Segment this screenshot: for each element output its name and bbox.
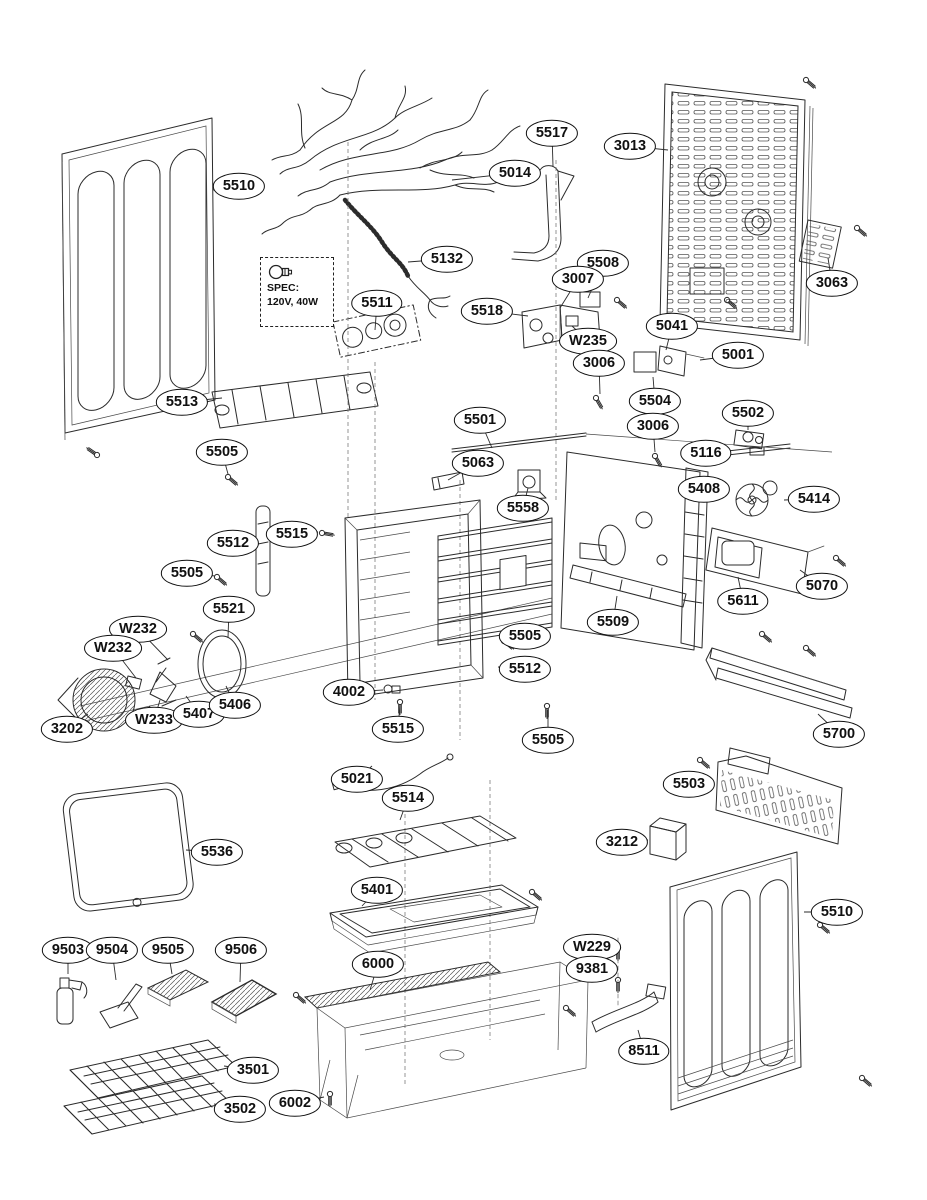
part-callout-3063: 3063: [806, 270, 858, 297]
part-callout-5014: 5014: [489, 160, 541, 187]
part-callout-5503: 5503: [663, 771, 715, 798]
part-callout-9381: 9381: [566, 956, 618, 983]
part-callout-5001: 5001: [712, 342, 764, 369]
part-callout-5521: 5521: [203, 596, 255, 623]
part-callout-6000: 6000: [352, 951, 404, 978]
part-callout-6002: 6002: [269, 1090, 321, 1117]
part-callout-5611: 5611: [717, 588, 768, 615]
part-callout-5514: 5514: [382, 785, 434, 812]
part-callout-5512: 5512: [207, 530, 259, 557]
part-callout-5515: 5515: [372, 716, 424, 743]
part-callout-5517: 5517: [526, 120, 578, 147]
part-callout-5510: 5510: [811, 899, 863, 926]
part-callout-5132: 5132: [421, 246, 473, 273]
part-callout-5116: 5116: [680, 440, 731, 467]
part-callout-5700: 5700: [813, 721, 865, 748]
part-callout-3006: 3006: [627, 413, 679, 440]
part-callout-5511: 5511: [351, 290, 402, 317]
part-callout-5505: 5505: [499, 623, 551, 650]
part-callout-3212: 3212: [596, 829, 648, 856]
part-callout-5505: 5505: [522, 727, 574, 754]
part-callout-5512: 5512: [499, 656, 551, 683]
part-callout-5504: 5504: [629, 388, 681, 415]
part-callout-5558: 5558: [497, 495, 549, 522]
part-callout-3501: 3501: [227, 1057, 279, 1084]
part-callout-5505: 5505: [161, 560, 213, 587]
part-callout-5502: 5502: [722, 400, 774, 427]
part-callout-5515: 5515: [266, 521, 318, 548]
part-callout-5406: 5406: [209, 692, 261, 719]
part-callout-5063: 5063: [452, 450, 504, 477]
exploded-parts-diagram: SPEC: 120V, 40W 551055175014301330635132…: [0, 0, 927, 1200]
part-callout-3202: 3202: [41, 716, 93, 743]
part-callout-w232: W232: [84, 635, 142, 662]
callout-layer: 5510551750143013306351325508300755115518…: [0, 0, 927, 1200]
part-callout-5408: 5408: [678, 476, 730, 503]
part-callout-4002: 4002: [323, 679, 375, 706]
part-callout-5021: 5021: [331, 766, 383, 793]
part-callout-5536: 5536: [191, 839, 243, 866]
part-callout-5513: 5513: [156, 389, 208, 416]
part-callout-5041: 5041: [646, 313, 698, 340]
part-callout-5510: 5510: [213, 173, 265, 200]
part-callout-3502: 3502: [214, 1096, 266, 1123]
part-callout-5509: 5509: [587, 609, 639, 636]
part-callout-5401: 5401: [351, 877, 403, 904]
part-callout-3013: 3013: [604, 133, 656, 160]
part-callout-3006: 3006: [573, 350, 625, 377]
part-callout-5518: 5518: [461, 298, 513, 325]
part-callout-3007: 3007: [552, 266, 604, 293]
part-callout-8511: 8511: [618, 1038, 669, 1065]
part-callout-5070: 5070: [796, 573, 848, 600]
part-callout-5414: 5414: [788, 486, 840, 513]
part-callout-5501: 5501: [454, 407, 506, 434]
part-callout-5505: 5505: [196, 439, 248, 466]
part-callout-9506: 9506: [215, 937, 267, 964]
part-callout-9504: 9504: [86, 937, 138, 964]
part-callout-9505: 9505: [142, 937, 194, 964]
